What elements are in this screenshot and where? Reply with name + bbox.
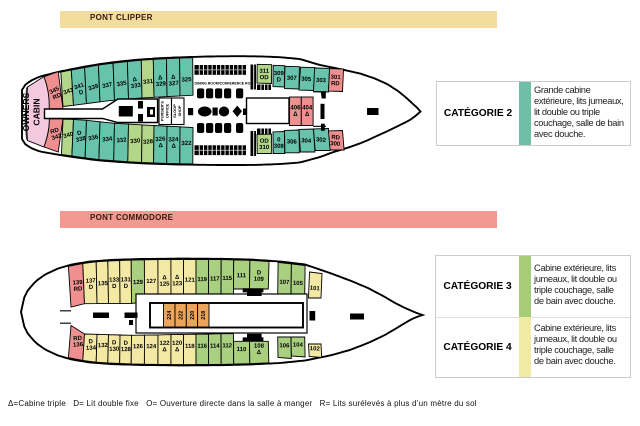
svg-text:222: 222: [179, 311, 185, 320]
svg-text:134: 134: [86, 345, 97, 351]
svg-text:331: 331: [143, 79, 154, 86]
svg-text:CABIN: CABIN: [32, 98, 42, 125]
svg-text:330: 330: [130, 138, 141, 145]
svg-text:SHOP: SHOP: [177, 105, 182, 116]
svg-text:105: 105: [293, 281, 304, 287]
svg-text:D: D: [277, 77, 282, 83]
svg-text:108: 108: [254, 343, 265, 349]
svg-text:104: 104: [293, 342, 304, 348]
svg-text:307: 307: [287, 76, 298, 82]
svg-text:112: 112: [222, 343, 232, 349]
svg-text:137: 137: [86, 278, 97, 284]
svg-text:328: 328: [143, 139, 154, 146]
svg-text:309: 309: [274, 71, 285, 77]
svg-text:124: 124: [146, 344, 157, 350]
svg-text:125: 125: [159, 282, 170, 288]
svg-text:304: 304: [301, 138, 312, 145]
svg-text:122: 122: [159, 341, 170, 347]
svg-text:123: 123: [172, 281, 183, 287]
svg-text:Δ: Δ: [293, 112, 298, 118]
svg-text:Δ: Δ: [305, 112, 310, 118]
svg-text:Δ: Δ: [175, 347, 180, 353]
svg-text:117: 117: [210, 276, 220, 282]
svg-text:327: 327: [169, 81, 180, 88]
svg-text:114: 114: [210, 344, 220, 350]
svg-text:119: 119: [197, 277, 207, 283]
svg-text:110: 110: [237, 347, 247, 353]
svg-text:Δ: Δ: [162, 275, 167, 281]
svg-text:218: 218: [201, 311, 207, 320]
svg-text:101: 101: [309, 286, 320, 293]
svg-text:325: 325: [181, 77, 192, 84]
svg-text:111: 111: [237, 273, 247, 279]
svg-text:102: 102: [310, 346, 321, 353]
svg-text:310: 310: [259, 145, 270, 151]
svg-text:115: 115: [222, 276, 232, 282]
svg-text:Δ: Δ: [162, 347, 167, 353]
svg-text:135: 135: [98, 281, 109, 287]
svg-text:OWNERS: OWNERS: [21, 92, 31, 131]
svg-text:332: 332: [116, 137, 127, 144]
svg-text:OD: OD: [260, 75, 270, 81]
svg-text:406: 406: [290, 105, 301, 111]
svg-text:126: 126: [133, 344, 144, 350]
svg-text:136: 136: [73, 342, 84, 349]
svg-text:322: 322: [181, 141, 192, 147]
svg-text:D: D: [124, 284, 129, 290]
svg-text:109: 109: [254, 277, 265, 283]
svg-text:306: 306: [287, 139, 298, 145]
svg-text:311: 311: [259, 69, 269, 75]
svg-text:132: 132: [98, 343, 109, 349]
svg-text:106: 106: [279, 343, 290, 349]
svg-text:127: 127: [146, 279, 157, 285]
svg-text:302: 302: [316, 137, 327, 144]
svg-text:OFFICE: OFFICE: [165, 103, 170, 118]
svg-text:116: 116: [197, 344, 207, 350]
svg-text:324: 324: [168, 137, 179, 143]
svg-text:129: 129: [133, 280, 144, 286]
svg-text:107: 107: [279, 280, 290, 286]
svg-text:305: 305: [301, 77, 312, 84]
svg-text:133: 133: [109, 278, 120, 284]
svg-text:121: 121: [185, 278, 196, 284]
svg-text:329: 329: [156, 81, 167, 88]
svg-text:300: 300: [330, 141, 341, 148]
svg-text:OD: OD: [260, 139, 270, 145]
svg-text:D: D: [112, 284, 117, 290]
svg-text:RD: RD: [74, 286, 84, 293]
svg-text:Δ: Δ: [175, 275, 180, 281]
svg-text:308: 308: [274, 144, 285, 150]
svg-text:130: 130: [109, 347, 120, 353]
svg-text:DINING ROOM/CONFERENCE ROOM: DINING ROOM/CONFERENCE ROOM: [195, 81, 257, 85]
svg-text:131: 131: [121, 277, 132, 283]
svg-text:RD: RD: [331, 81, 341, 87]
svg-text:128: 128: [121, 347, 132, 353]
svg-text:D: D: [112, 340, 117, 346]
svg-text:120: 120: [172, 341, 183, 347]
svg-text:118: 118: [185, 344, 195, 350]
svg-text:303: 303: [316, 78, 327, 84]
svg-text:326: 326: [155, 137, 166, 144]
svg-text:D: D: [124, 341, 129, 347]
svg-text:224: 224: [167, 311, 173, 320]
svg-text:220: 220: [190, 311, 196, 320]
svg-text:404: 404: [302, 105, 313, 111]
